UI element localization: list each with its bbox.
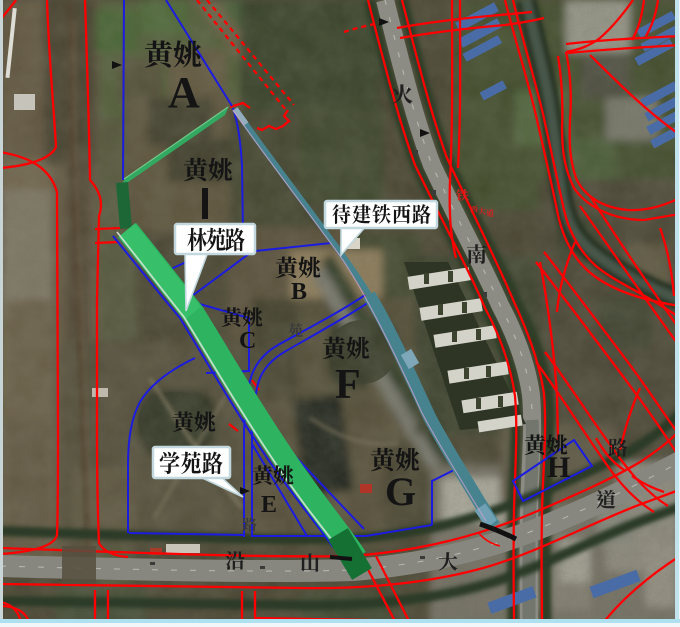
svg-text:H: H — [547, 451, 570, 484]
svg-text:F: F — [335, 362, 361, 408]
svg-text:G: G — [385, 469, 416, 514]
svg-text:B: B — [291, 279, 307, 305]
svg-text:E: E — [261, 492, 277, 518]
svg-text:A: A — [168, 68, 200, 117]
svg-text:C: C — [239, 328, 256, 354]
